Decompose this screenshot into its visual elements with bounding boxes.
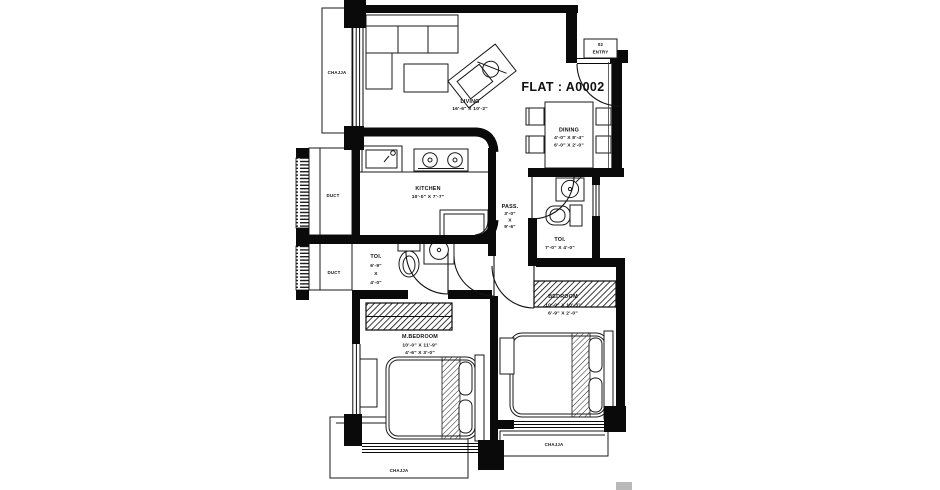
- duct-wall-hatch-lower: [296, 246, 309, 290]
- entry-door-sill: [577, 59, 612, 64]
- pillow: [589, 338, 602, 372]
- passage-h: 9'-6": [504, 224, 516, 230]
- toilet-window: [593, 185, 599, 216]
- dining-table: [545, 102, 593, 168]
- entry-tag: 02 ENTRY: [584, 39, 617, 58]
- toilet-master-w: 6'-9": [370, 263, 382, 269]
- floor-plan-drawing: CHAJJA CHAJJA CHAJJA: [0, 0, 940, 490]
- bedroom-size2: 6'-9" X 2'-0": [548, 311, 578, 317]
- floor-plan: CHAJJA CHAJJA CHAJJA: [0, 0, 940, 490]
- wc: [546, 205, 582, 226]
- washbasin: [556, 177, 584, 201]
- living-window: [353, 28, 363, 126]
- toilet-master-label: TOI.: [370, 254, 381, 260]
- master-bedroom-furniture: [360, 303, 484, 441]
- toilet-master-x: X: [374, 271, 378, 277]
- bedroom-door: [492, 266, 534, 308]
- toilet-common-fixtures: [546, 177, 584, 226]
- kitchen-size: 10'-0" X 7'-7": [412, 194, 445, 200]
- entry-label: ENTRY: [593, 50, 609, 55]
- dining-furniture: [526, 102, 614, 168]
- headboard: [604, 331, 613, 419]
- bedside-table: [360, 359, 377, 407]
- master-bedroom-size2: 4'-6" X 3'-0": [405, 350, 435, 356]
- passage-label: PASS.: [502, 204, 519, 210]
- bedroom-size1: 10'-0" X 10'-3": [545, 303, 581, 309]
- headboard: [475, 355, 484, 441]
- master-bedroom-label: M.BEDROOM: [402, 334, 438, 340]
- pillow: [459, 400, 472, 433]
- bed: [510, 331, 613, 419]
- bedroom-furniture: [500, 281, 616, 419]
- bedroom-window: [514, 422, 606, 428]
- toilet-master-h: 4'-0": [370, 280, 382, 286]
- chajja-bedroom: CHAJJA: [500, 431, 608, 456]
- pillow: [589, 378, 602, 412]
- living-size: 16'-6" X 10'-2": [452, 106, 488, 112]
- duct-wall-hatch-upper: [296, 158, 309, 228]
- master-bedroom-window: [362, 444, 478, 453]
- kitchen-sink: [362, 146, 402, 172]
- master-bedroom-side-window: [353, 344, 360, 414]
- dining-size1: 4'-0" X 8'-4": [554, 135, 584, 141]
- living-label: LIVING: [460, 99, 479, 105]
- chajja-left-label: CHAJJA: [328, 70, 347, 75]
- living-room-furniture: [366, 15, 516, 108]
- kitchen-fixtures: [360, 146, 488, 240]
- bed: [386, 355, 484, 441]
- chajja-bedroom-label: CHAJJA: [545, 442, 564, 447]
- duct-kitchen-label: DUCT: [327, 193, 340, 198]
- pillow: [459, 362, 472, 395]
- toilet-common-label: TOI.: [554, 237, 565, 243]
- kitchen-label: KITCHEN: [415, 186, 440, 192]
- coffee-table: [404, 64, 448, 92]
- toilet-common-size: 7'-0" X 4'-0": [545, 245, 575, 251]
- scan-artifact: [616, 482, 632, 490]
- passage-x: X: [508, 218, 512, 224]
- wc: [398, 241, 420, 277]
- dining-size2: 6'-0" X 2'-0": [554, 143, 584, 149]
- bedside-table: [500, 338, 514, 374]
- tv-unit: [448, 44, 516, 108]
- ducts: [296, 148, 352, 290]
- duct-toilet-label: DUCT: [328, 270, 341, 275]
- dining-label: DINING: [559, 128, 579, 134]
- entry-code: 02: [598, 42, 604, 47]
- hob: [414, 149, 468, 171]
- bedroom-label: BEDROOM: [548, 294, 578, 300]
- flat-title: FLAT : A0002: [521, 80, 604, 94]
- master-bedroom-size1: 10'-0" X 11'-9": [402, 343, 437, 349]
- passage-w: 3'-0": [504, 211, 516, 217]
- chajja-mbedroom-label: CHAJJA: [390, 468, 409, 473]
